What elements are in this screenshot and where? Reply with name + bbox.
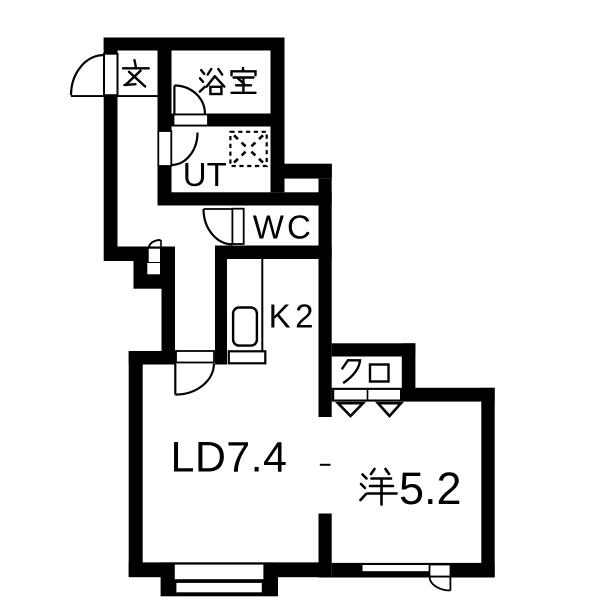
svg-text:WC: WC [253,209,314,246]
svg-text:UT: UT [183,156,227,193]
svg-text:K2: K2 [269,298,318,335]
svg-text:5.2: 5.2 [399,463,462,514]
svg-text:LD7.4: LD7.4 [171,434,288,482]
